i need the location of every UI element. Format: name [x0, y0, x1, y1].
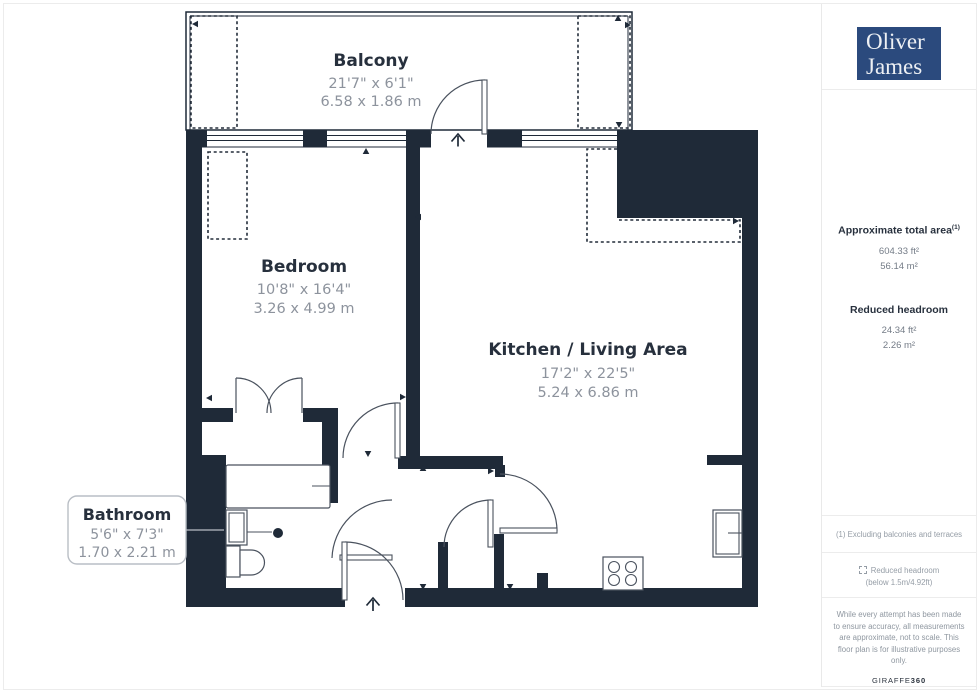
- disclaimer-section: While every attempt has been made to ens…: [822, 598, 976, 687]
- svg-text:5.24 x 6.86 m: 5.24 x 6.86 m: [537, 385, 638, 401]
- entrance-arrow: [367, 598, 380, 611]
- floorplan-page: Balcony 21'7" x 6'1" 6.58 x 1.86 m Bedro…: [0, 0, 980, 693]
- agency-logo-section: Oliver James: [822, 4, 976, 90]
- walls: [186, 130, 758, 607]
- svg-text:Balcony: Balcony: [333, 51, 408, 71]
- wall-unit: [713, 510, 742, 557]
- room-labels: Balcony 21'7" x 6'1" 6.58 x 1.86 m Bedro…: [68, 51, 688, 564]
- room-label-balcony: Balcony 21'7" x 6'1" 6.58 x 1.86 m: [320, 51, 421, 110]
- total-area-heading: Approximate total area(1): [822, 224, 976, 237]
- room-label-bedroom: Bedroom 10'8" x 16'4" 3.26 x 4.99 m: [253, 257, 354, 317]
- total-area-footnote-marker: (1): [952, 224, 960, 231]
- legend-detail: (below 1.5m/4.92ft): [822, 577, 976, 589]
- footnote-section: (1) Excluding balconies and terraces: [822, 516, 976, 553]
- svg-text:1.70 x 2.21 m: 1.70 x 2.21 m: [78, 545, 176, 561]
- svg-text:Bedroom: Bedroom: [261, 257, 347, 277]
- legend-section: Reduced headroom (below 1.5m/4.92ft): [822, 553, 976, 598]
- total-area-label: Approximate total area: [838, 225, 952, 237]
- svg-text:6.58 x 1.86 m: 6.58 x 1.86 m: [320, 94, 421, 110]
- svg-text:21'7" x 6'1": 21'7" x 6'1": [328, 76, 413, 92]
- room-label-kitchen-living: Kitchen / Living Area 17'2" x 22'5" 5.24…: [488, 340, 687, 401]
- footnote-text: (1) Excluding balconies and terraces: [836, 530, 962, 539]
- svg-text:17'2" x 22'5": 17'2" x 22'5": [541, 366, 635, 382]
- total-area-imperial: 604.33 ft²: [822, 244, 976, 259]
- floor-plan-svg: Balcony 21'7" x 6'1" 6.58 x 1.86 m Bedro…: [0, 0, 822, 693]
- balcony-door-arrow: [452, 134, 465, 147]
- hob: [603, 557, 643, 590]
- svg-text:Bathroom: Bathroom: [83, 505, 172, 524]
- bathtub: [226, 465, 330, 508]
- agency-logo: Oliver James: [857, 27, 941, 80]
- provider-logo: GIRAFFE360: [833, 675, 965, 687]
- svg-text:5'6" x 7'3": 5'6" x 7'3": [90, 527, 163, 543]
- balcony-structure: [186, 12, 632, 130]
- reduced-headroom-values: 24.34 ft² 2.26 m²: [822, 323, 976, 353]
- basin: [226, 510, 283, 545]
- agency-logo-line1: Oliver: [866, 29, 941, 54]
- windows: [186, 130, 617, 147]
- provider-name: GIRAFFE: [872, 676, 911, 685]
- disclaimer-text: While every attempt has been made to ens…: [833, 609, 965, 667]
- legend-row: Reduced headroom: [822, 565, 976, 577]
- total-area-metric: 56.14 m²: [822, 259, 976, 274]
- measurements-section: Approximate total area(1) 604.33 ft² 56.…: [822, 90, 976, 516]
- svg-text:3.26 x 4.99 m: 3.26 x 4.99 m: [253, 301, 354, 317]
- info-sidebar: Oliver James Approximate total area(1) 6…: [821, 4, 976, 687]
- reduced-headroom-heading: Reduced headroom: [822, 304, 976, 316]
- fixtures: [226, 465, 742, 590]
- toilet: [226, 546, 265, 577]
- total-area-values: 604.33 ft² 56.14 m²: [822, 244, 976, 274]
- reduced-headroom-metric: 2.26 m²: [822, 338, 976, 353]
- provider-suffix: 360: [911, 676, 926, 685]
- svg-text:Kitchen / Living Area: Kitchen / Living Area: [488, 340, 687, 360]
- svg-text:10'8" x 16'4": 10'8" x 16'4": [257, 282, 351, 298]
- agency-logo-line2: James: [866, 54, 941, 79]
- legend-label: Reduced headroom: [871, 566, 940, 575]
- reduced-headroom-legend-icon: [859, 566, 867, 574]
- reduced-headroom-imperial: 24.34 ft²: [822, 323, 976, 338]
